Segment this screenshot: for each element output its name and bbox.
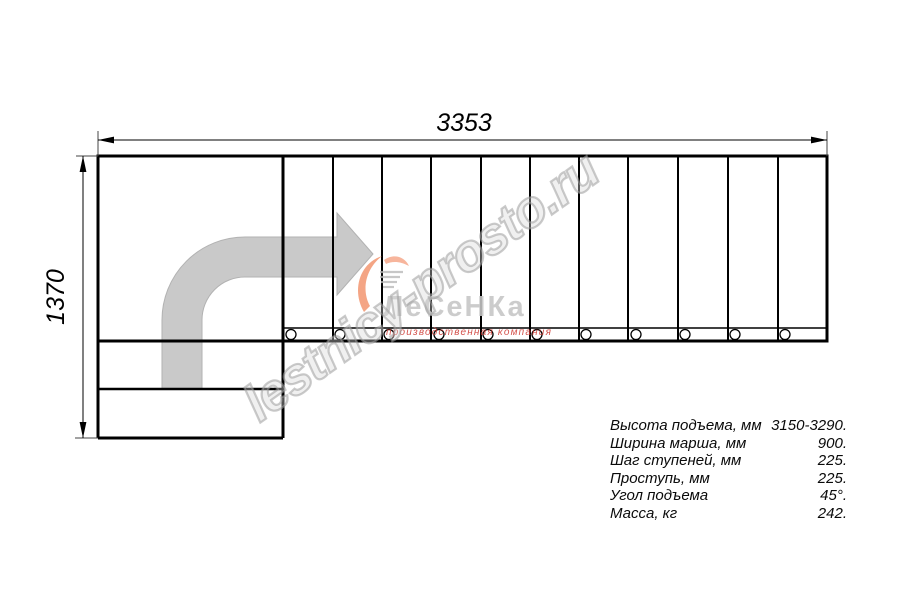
spec-row: Шаг ступеней, мм 225. bbox=[610, 452, 847, 470]
spec-table: Высота подъема, мм 3150-3290. Ширина мар… bbox=[610, 417, 847, 523]
direction-arrow bbox=[162, 213, 373, 389]
spec-value: 45°. bbox=[820, 487, 847, 505]
dim-arrow-up-icon bbox=[80, 156, 87, 172]
spec-label: Масса, кг bbox=[610, 505, 677, 523]
staircase-plan-page: 3353 1370 ЛеСеНКа производственная компа… bbox=[0, 0, 900, 600]
spec-row: Проступь, мм 225. bbox=[610, 470, 847, 488]
dimension-height-label: 1370 bbox=[42, 269, 70, 325]
spec-label: Угол подъема bbox=[610, 487, 708, 505]
spec-value: 225. bbox=[818, 470, 847, 488]
dim-arrow-left-icon bbox=[98, 137, 114, 144]
spec-label: Шаг ступеней, мм bbox=[610, 452, 741, 470]
spec-value: 900. bbox=[818, 435, 847, 453]
spec-value: 242. bbox=[818, 505, 847, 523]
dim-arrow-right-icon bbox=[811, 137, 827, 144]
spec-value: 225. bbox=[818, 452, 847, 470]
dimension-width-label: 3353 bbox=[436, 109, 492, 137]
dimension-left: 1370 bbox=[42, 156, 98, 438]
spec-label: Высота подъема, мм bbox=[610, 417, 762, 435]
spec-row: Ширина марша, мм 900. bbox=[610, 435, 847, 453]
spec-row: Угол подъема 45°. bbox=[610, 487, 847, 505]
baluster-circles bbox=[286, 330, 790, 340]
spec-row: Масса, кг 242. bbox=[610, 505, 847, 523]
spec-value: 3150-3290. bbox=[771, 417, 847, 435]
tread-edges bbox=[333, 156, 778, 341]
spec-row: Высота подъема, мм 3150-3290. bbox=[610, 417, 847, 435]
spec-label: Ширина марша, мм bbox=[610, 435, 746, 453]
dimension-top: 3353 bbox=[98, 109, 827, 156]
spec-label: Проступь, мм bbox=[610, 470, 710, 488]
dim-arrow-down-icon bbox=[80, 422, 87, 438]
